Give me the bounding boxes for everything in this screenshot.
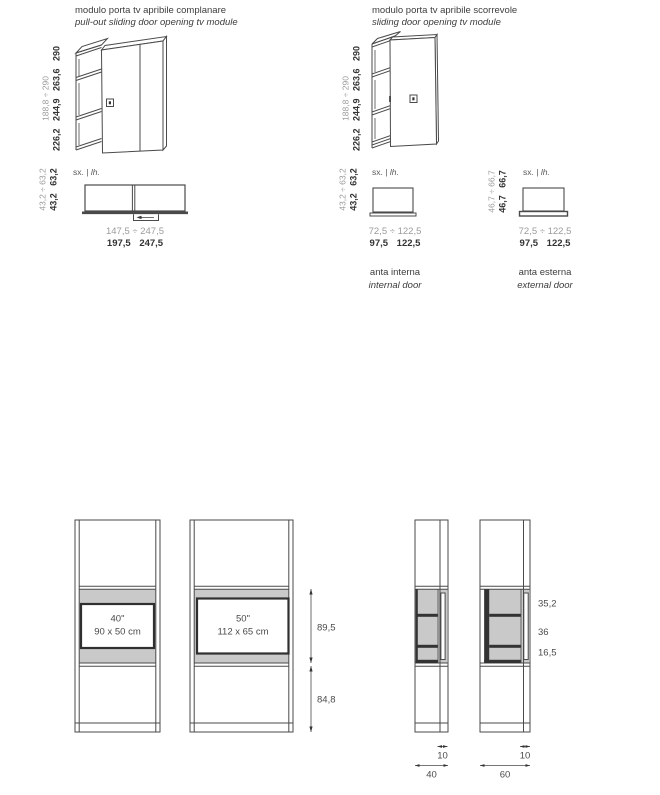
door-handle-icon <box>389 96 391 102</box>
depth-dims-60: 10 60 <box>480 745 530 780</box>
side-label-full: sx. | lh. <box>73 167 100 177</box>
lh-label: lh. <box>390 167 399 177</box>
lh-label: lh. <box>541 167 550 177</box>
sx-label: sx. <box>73 167 84 177</box>
depth-labels-full: 43,2 ÷ 63,2 43,2 63,2 <box>38 163 61 217</box>
iso-drawing-complanare <box>55 33 180 155</box>
depth-range: 43,2 ÷ 63,2 <box>338 163 349 217</box>
width-range: 72,5 ÷ 122,5 <box>343 226 447 238</box>
caption-italian: anta esterna <box>493 267 597 280</box>
door-panel-slot <box>441 593 445 660</box>
side-label-external: sx. | lh. <box>523 167 550 177</box>
height-dimension-chain: 89,5 84,8 <box>309 589 335 732</box>
title-italian: modulo porta tv apribile complanare <box>75 5 238 17</box>
depth-values: 43,2 63,2 <box>49 163 60 217</box>
depth-dims-40: 10 40 <box>415 745 448 780</box>
sx-label: sx. <box>523 167 534 177</box>
plan-drawing-internal <box>365 183 423 219</box>
depth-labels-external: 46,7 ÷ 66,7 46,7 66,7 <box>487 165 510 219</box>
lh-label: lh. <box>91 167 100 177</box>
depth-labels-internal: 43,2 ÷ 63,2 43,2 63,2 <box>338 163 361 217</box>
spec-sheet: modulo porta tv apribile complanare pull… <box>0 0 660 795</box>
total-depth-dim: 40 <box>426 770 437 781</box>
width-values: 97,5 122,5 <box>493 238 597 250</box>
tv-40-cm-label: 90 x 50 cm <box>94 627 141 638</box>
bottom-shelf-dim: 16,5 <box>538 648 557 659</box>
door-depth-dim: 10 <box>520 751 531 762</box>
width-dims-external: 72,5 ÷ 122,5 97,5 122,5 <box>493 226 597 250</box>
width-range: 72,5 ÷ 122,5 <box>493 226 597 238</box>
separator: | <box>536 167 538 177</box>
height-range: 188,8 ÷ 290 <box>341 37 352 161</box>
plan-drawing-external <box>515 183 573 219</box>
iso-drawing-scorrevole <box>358 30 483 152</box>
middle-shelf-dim: 36 <box>538 627 549 638</box>
width-dims-full: 147,5 ÷ 247,5 197,5 247,5 <box>75 226 195 250</box>
caption-internal-door: anta interna internal door <box>343 267 447 292</box>
width-dims-internal: 72,5 ÷ 122,5 97,5 122,5 <box>343 226 447 250</box>
tv-zone-height-dim: 89,5 <box>317 623 336 634</box>
width-range: 147,5 ÷ 247,5 <box>75 226 195 238</box>
depth-values: 46,7 66,7 <box>498 165 509 219</box>
tv-50-cm-label: 112 x 65 cm <box>217 627 268 638</box>
height-range: 188,8 ÷ 290 <box>41 37 52 161</box>
separator: | <box>86 167 88 177</box>
tv-40-size-label: 40" <box>111 614 125 625</box>
door-panel-slot <box>524 593 528 660</box>
title-italian: modulo porta tv apribile scorrevole <box>372 5 517 17</box>
title-english: pull-out sliding door opening tv module <box>75 17 238 29</box>
side-label-internal: sx. | lh. <box>372 167 399 177</box>
depth-range: 46,7 ÷ 66,7 <box>487 165 498 219</box>
width-values: 197,5 247,5 <box>75 238 195 250</box>
caption-english: external door <box>493 280 597 293</box>
caption-english: internal door <box>343 280 447 293</box>
side-view-40 <box>415 520 448 732</box>
top-shelf-dim: 35,2 <box>538 599 557 610</box>
module-complanare-title: modulo porta tv apribile complanare pull… <box>75 5 238 28</box>
module-scorrevole-title: modulo porta tv apribile scorrevole slid… <box>372 5 517 28</box>
total-depth-dim: 60 <box>500 770 511 781</box>
base-height-dim: 84,8 <box>317 695 336 706</box>
plan-drawing-full <box>70 180 195 228</box>
separator: | <box>385 167 387 177</box>
caption-external-door: anta esterna external door <box>493 267 597 292</box>
sx-label: sx. <box>372 167 383 177</box>
title-english: sliding door opening tv module <box>372 17 517 29</box>
door-depth-dim: 10 <box>437 751 448 762</box>
tv-50-size-label: 50" <box>236 614 250 625</box>
depth-values: 43,2 63,2 <box>349 163 360 217</box>
slide-direction-arrow-icon <box>137 216 142 219</box>
depth-range: 43,2 ÷ 63,2 <box>38 163 49 217</box>
caption-italian: anta interna <box>343 267 447 280</box>
width-values: 97,5 122,5 <box>343 238 447 250</box>
elevation-drawings: 40" 90 x 50 cm 50" 112 x 65 cm 89,5 84,8 <box>0 510 660 795</box>
side-view-60: 35,2 36 16,5 <box>480 520 557 732</box>
front-view-40: 40" 90 x 50 cm <box>75 520 160 732</box>
front-view-50: 50" 112 x 65 cm <box>190 520 293 732</box>
